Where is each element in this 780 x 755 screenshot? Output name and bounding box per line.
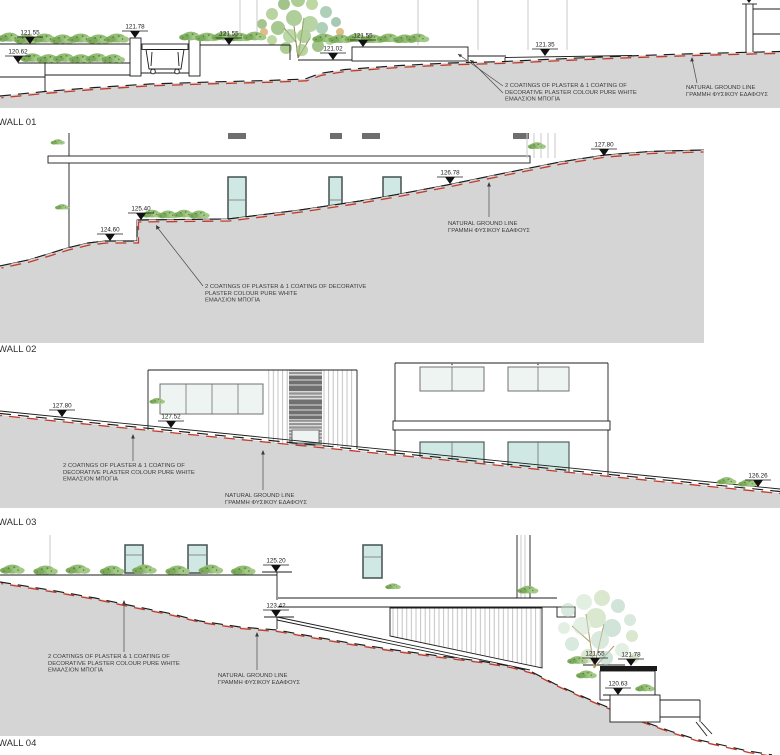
plant xyxy=(385,583,401,589)
svg-text:126.26: 126.26 xyxy=(748,473,768,480)
natural-ground xyxy=(0,414,780,509)
bin-enclosure xyxy=(130,38,200,76)
natural-ground xyxy=(0,582,773,755)
spot-elevation-marker: 121.55 xyxy=(350,33,376,48)
waste-container xyxy=(142,44,188,74)
svg-text:2 COATINGS OF PLASTER & 1 COAT: 2 COATINGS OF PLASTER & 1 COATING OF DEC… xyxy=(205,284,366,290)
wall-label: WALL 02 xyxy=(0,344,36,355)
svg-text:121.55: 121.55 xyxy=(585,651,605,658)
window xyxy=(228,177,246,220)
spot-elevation-marker: 124.60 xyxy=(97,227,123,242)
plant xyxy=(51,139,65,144)
plant xyxy=(528,142,546,149)
plant xyxy=(55,204,69,209)
window xyxy=(508,367,569,391)
elevation-drawing: 121.55 120.62 121.78 121.55 121.02 121.5… xyxy=(0,0,780,755)
spot-elevation-marker: 121.35 xyxy=(532,42,558,57)
boundary-column xyxy=(737,0,780,52)
svg-text:ΓΡΑΜΜΗ ΦΥΣΙΚΟΥ ΕΔΑΦΟΥΣ: ΓΡΑΜΜΗ ΦΥΣΙΚΟΥ ΕΔΑΦΟΥΣ xyxy=(448,228,530,234)
window xyxy=(420,367,484,391)
svg-text:126.78: 126.78 xyxy=(440,170,460,177)
svg-text:ΕΜΑΛΣΙΟΝ ΜΠΟΓΙΑ: ΕΜΑΛΣΙΟΝ ΜΠΟΓΙΑ xyxy=(505,97,560,103)
svg-text:DECORATIVE PLASTER COLOUR PURE: DECORATIVE PLASTER COLOUR PURE WHITE xyxy=(63,470,195,476)
svg-text:NATURAL GROUND LINE: NATURAL GROUND LINE xyxy=(686,85,755,91)
svg-text:121.78: 121.78 xyxy=(125,24,145,31)
balcony-rail xyxy=(527,133,555,158)
plant xyxy=(576,671,597,679)
wall-01-section: 121.55 120.62 121.78 121.55 121.02 121.5… xyxy=(0,0,780,128)
svg-text:ΕΜΑΛΣΙΟΝ ΜΠΟΓΙΑ: ΕΜΑΛΣΙΟΝ ΜΠΟΓΙΑ xyxy=(205,298,260,304)
spot-elevation-marker: 121.02 xyxy=(320,46,346,61)
svg-text:127.52: 127.52 xyxy=(161,414,181,421)
spot-elevation-marker: 121.78 xyxy=(122,24,148,39)
natural-ground xyxy=(0,150,704,343)
wall-label: WALL 01 xyxy=(0,117,36,128)
svg-text:121.55: 121.55 xyxy=(20,30,40,37)
glass-band xyxy=(160,384,263,414)
ledge-shrubs xyxy=(142,210,210,219)
svg-text:2 COATINGS OF PLASTER & 1 COAT: 2 COATINGS OF PLASTER & 1 COATING OF xyxy=(63,463,185,469)
svg-text:125.20: 125.20 xyxy=(266,558,286,565)
spot-elevation-marker: 126.78 xyxy=(437,170,463,185)
spot-elevation-marker: 123.42 xyxy=(263,603,289,618)
spot-elevation-marker: 125.20 xyxy=(263,558,289,573)
spot-elevation-marker: 127.80 xyxy=(591,142,617,157)
svg-text:121.55: 121.55 xyxy=(353,33,373,40)
svg-text:ΓΡΑΜΜΗ ΦΥΣΙΚΟΥ ΕΔΑΦΟΥΣ: ΓΡΑΜΜΗ ΦΥΣΙΚΟΥ ΕΔΑΦΟΥΣ xyxy=(225,500,307,506)
svg-text:DECORATIVE PLASTER COLOUR PURE: DECORATIVE PLASTER COLOUR PURE WHITE xyxy=(505,90,637,96)
svg-text:121.02: 121.02 xyxy=(323,46,343,53)
svg-text:121.35: 121.35 xyxy=(535,42,555,49)
svg-text:121.55: 121.55 xyxy=(219,31,239,38)
svg-text:ΕΜΑΛΣΙΟΝ ΜΠΟΓΙΑ: ΕΜΑΛΣΙΟΝ ΜΠΟΓΙΑ xyxy=(63,477,118,483)
drawing-sheet: 121.55 120.62 121.78 121.55 121.02 121.5… xyxy=(0,0,780,755)
svg-text:124.60: 124.60 xyxy=(100,227,120,234)
svg-text:2 COATINGS OF PLASTER & 1 COAT: 2 COATINGS OF PLASTER & 1 COATING OF xyxy=(48,654,170,660)
spot-elevation-marker: 125.40 xyxy=(128,206,154,221)
svg-text:ΓΡΑΜΜΗ ΦΥΣΙΚΟΥ ΕΔΑΦΟΥΣ: ΓΡΑΜΜΗ ΦΥΣΙΚΟΥ ΕΔΑΦΟΥΣ xyxy=(686,92,768,98)
svg-text:127.80: 127.80 xyxy=(52,403,72,410)
svg-text:PLASTER COLOUR PURE WHITE: PLASTER COLOUR PURE WHITE xyxy=(205,291,297,297)
spot-elevation-marker: 127.80 xyxy=(49,403,75,418)
svg-text:120.63: 120.63 xyxy=(608,681,628,688)
column xyxy=(517,535,538,598)
spot-elevation-marker-clipped xyxy=(737,0,761,3)
floor-slab-band xyxy=(393,421,610,430)
spot-elevation-marker: 121.78 xyxy=(618,652,644,667)
svg-text:125.40: 125.40 xyxy=(131,206,151,213)
svg-text:121.78: 121.78 xyxy=(621,652,641,659)
svg-text:NATURAL GROUND LINE: NATURAL GROUND LINE xyxy=(225,493,294,499)
svg-text:120.62: 120.62 xyxy=(8,49,28,56)
svg-text:2 COATINGS OF PLASTER & 1 COAT: 2 COATINGS OF PLASTER & 1 COATING OF xyxy=(505,83,627,89)
wall-label: WALL 03 xyxy=(0,517,36,528)
svg-text:ΓΡΑΜΜΗ ΦΥΣΙΚΟΥ ΕΔΑΦΟΥΣ: ΓΡΑΜΜΗ ΦΥΣΙΚΟΥ ΕΔΑΦΟΥΣ xyxy=(218,680,300,686)
spot-elevation-marker: 121.55 xyxy=(216,31,242,46)
wall-label: WALL 04 xyxy=(0,738,36,749)
left-planters xyxy=(0,32,132,93)
svg-text:NATURAL GROUND LINE: NATURAL GROUND LINE xyxy=(218,673,287,679)
wall-03-section: 127.80 127.52 126.26 2 COATINGS OF PLAST… xyxy=(0,363,780,528)
svg-text:123.42: 123.42 xyxy=(266,603,286,610)
svg-text:127.80: 127.80 xyxy=(594,142,614,149)
svg-text:DECORATIVE PLASTER COLOUR PURE: DECORATIVE PLASTER COLOUR PURE WHITE xyxy=(48,661,180,667)
wall-04-section: 125.20 123.42 121.55 121.78 120.63 2 COA… xyxy=(0,535,773,755)
svg-text:NATURAL GROUND LINE: NATURAL GROUND LINE xyxy=(448,221,517,227)
window xyxy=(363,545,382,578)
svg-text:ΕΜΑΛΣΙΟΝ ΜΠΟΓΙΑ: ΕΜΑΛΣΙΟΝ ΜΠΟΓΙΑ xyxy=(48,668,103,674)
louver-panel xyxy=(289,370,322,447)
wall-02-section: 124.60 125.40 126.78 127.80 2 COATINGS O… xyxy=(0,133,704,355)
